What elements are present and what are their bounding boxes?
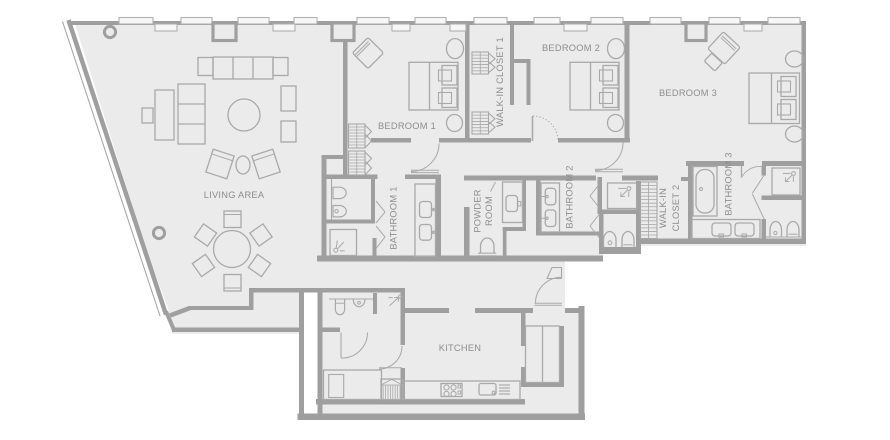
svg-text:BEDROOM 1: BEDROOM 1 xyxy=(378,121,436,131)
svg-text:BEDROOM 2: BEDROOM 2 xyxy=(542,43,600,53)
svg-text:BATHROOM 3: BATHROOM 3 xyxy=(724,152,734,215)
svg-text:POWDER: POWDER xyxy=(473,189,483,232)
svg-text:KITCHEN: KITCHEN xyxy=(439,343,482,353)
svg-text:LIVING AREA: LIVING AREA xyxy=(204,190,265,200)
svg-text:BEDROOM 3: BEDROOM 3 xyxy=(659,88,717,98)
svg-text:BATHROOM 1: BATHROOM 1 xyxy=(389,186,399,249)
svg-text:BATHROOM 2: BATHROOM 2 xyxy=(565,165,575,228)
svg-text:CLOSET 2: CLOSET 2 xyxy=(671,185,681,232)
svg-text:WALK-IN CLOSET 1: WALK-IN CLOSET 1 xyxy=(495,37,505,127)
svg-text:WALK-IN: WALK-IN xyxy=(658,188,668,228)
svg-text:ROOM: ROOM xyxy=(484,196,494,226)
